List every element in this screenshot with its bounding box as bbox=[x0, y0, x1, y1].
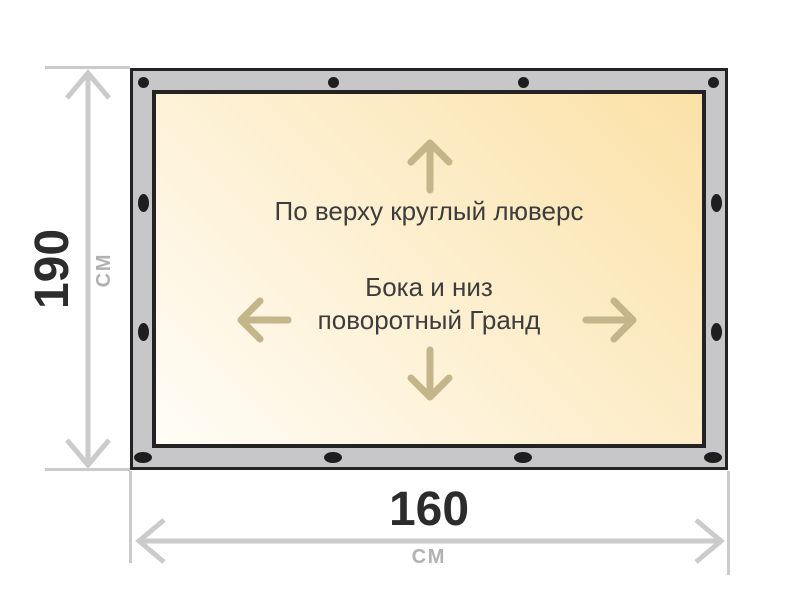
grommet-dot bbox=[328, 77, 339, 88]
arrow-down-icon bbox=[402, 346, 458, 406]
grommet-dot bbox=[134, 452, 152, 463]
grommet-dot bbox=[138, 194, 149, 212]
grommet-dot bbox=[514, 452, 532, 463]
width-unit: см bbox=[130, 544, 728, 570]
banner-diagram: 190 см 160 см По верху круглый люверс bbox=[0, 0, 800, 600]
width-value: 160 bbox=[130, 484, 728, 536]
grommet-dot bbox=[138, 77, 149, 88]
height-unit: см bbox=[89, 230, 119, 310]
grommet-dot bbox=[708, 77, 719, 88]
grommet-dot bbox=[704, 452, 722, 463]
grommet-dot bbox=[711, 323, 722, 341]
banner-canvas: По верху круглый люверс Бока и низ повор… bbox=[152, 90, 706, 448]
height-value: 190 bbox=[23, 204, 83, 334]
arrow-up-icon bbox=[402, 134, 458, 194]
grommet-dot bbox=[324, 452, 342, 463]
arrow-right-icon bbox=[582, 292, 642, 348]
grommet-dot bbox=[711, 194, 722, 212]
grommet-dot bbox=[138, 323, 149, 341]
grommet-dot bbox=[518, 77, 529, 88]
note-top-edge: По верху круглый люверс bbox=[156, 195, 702, 228]
